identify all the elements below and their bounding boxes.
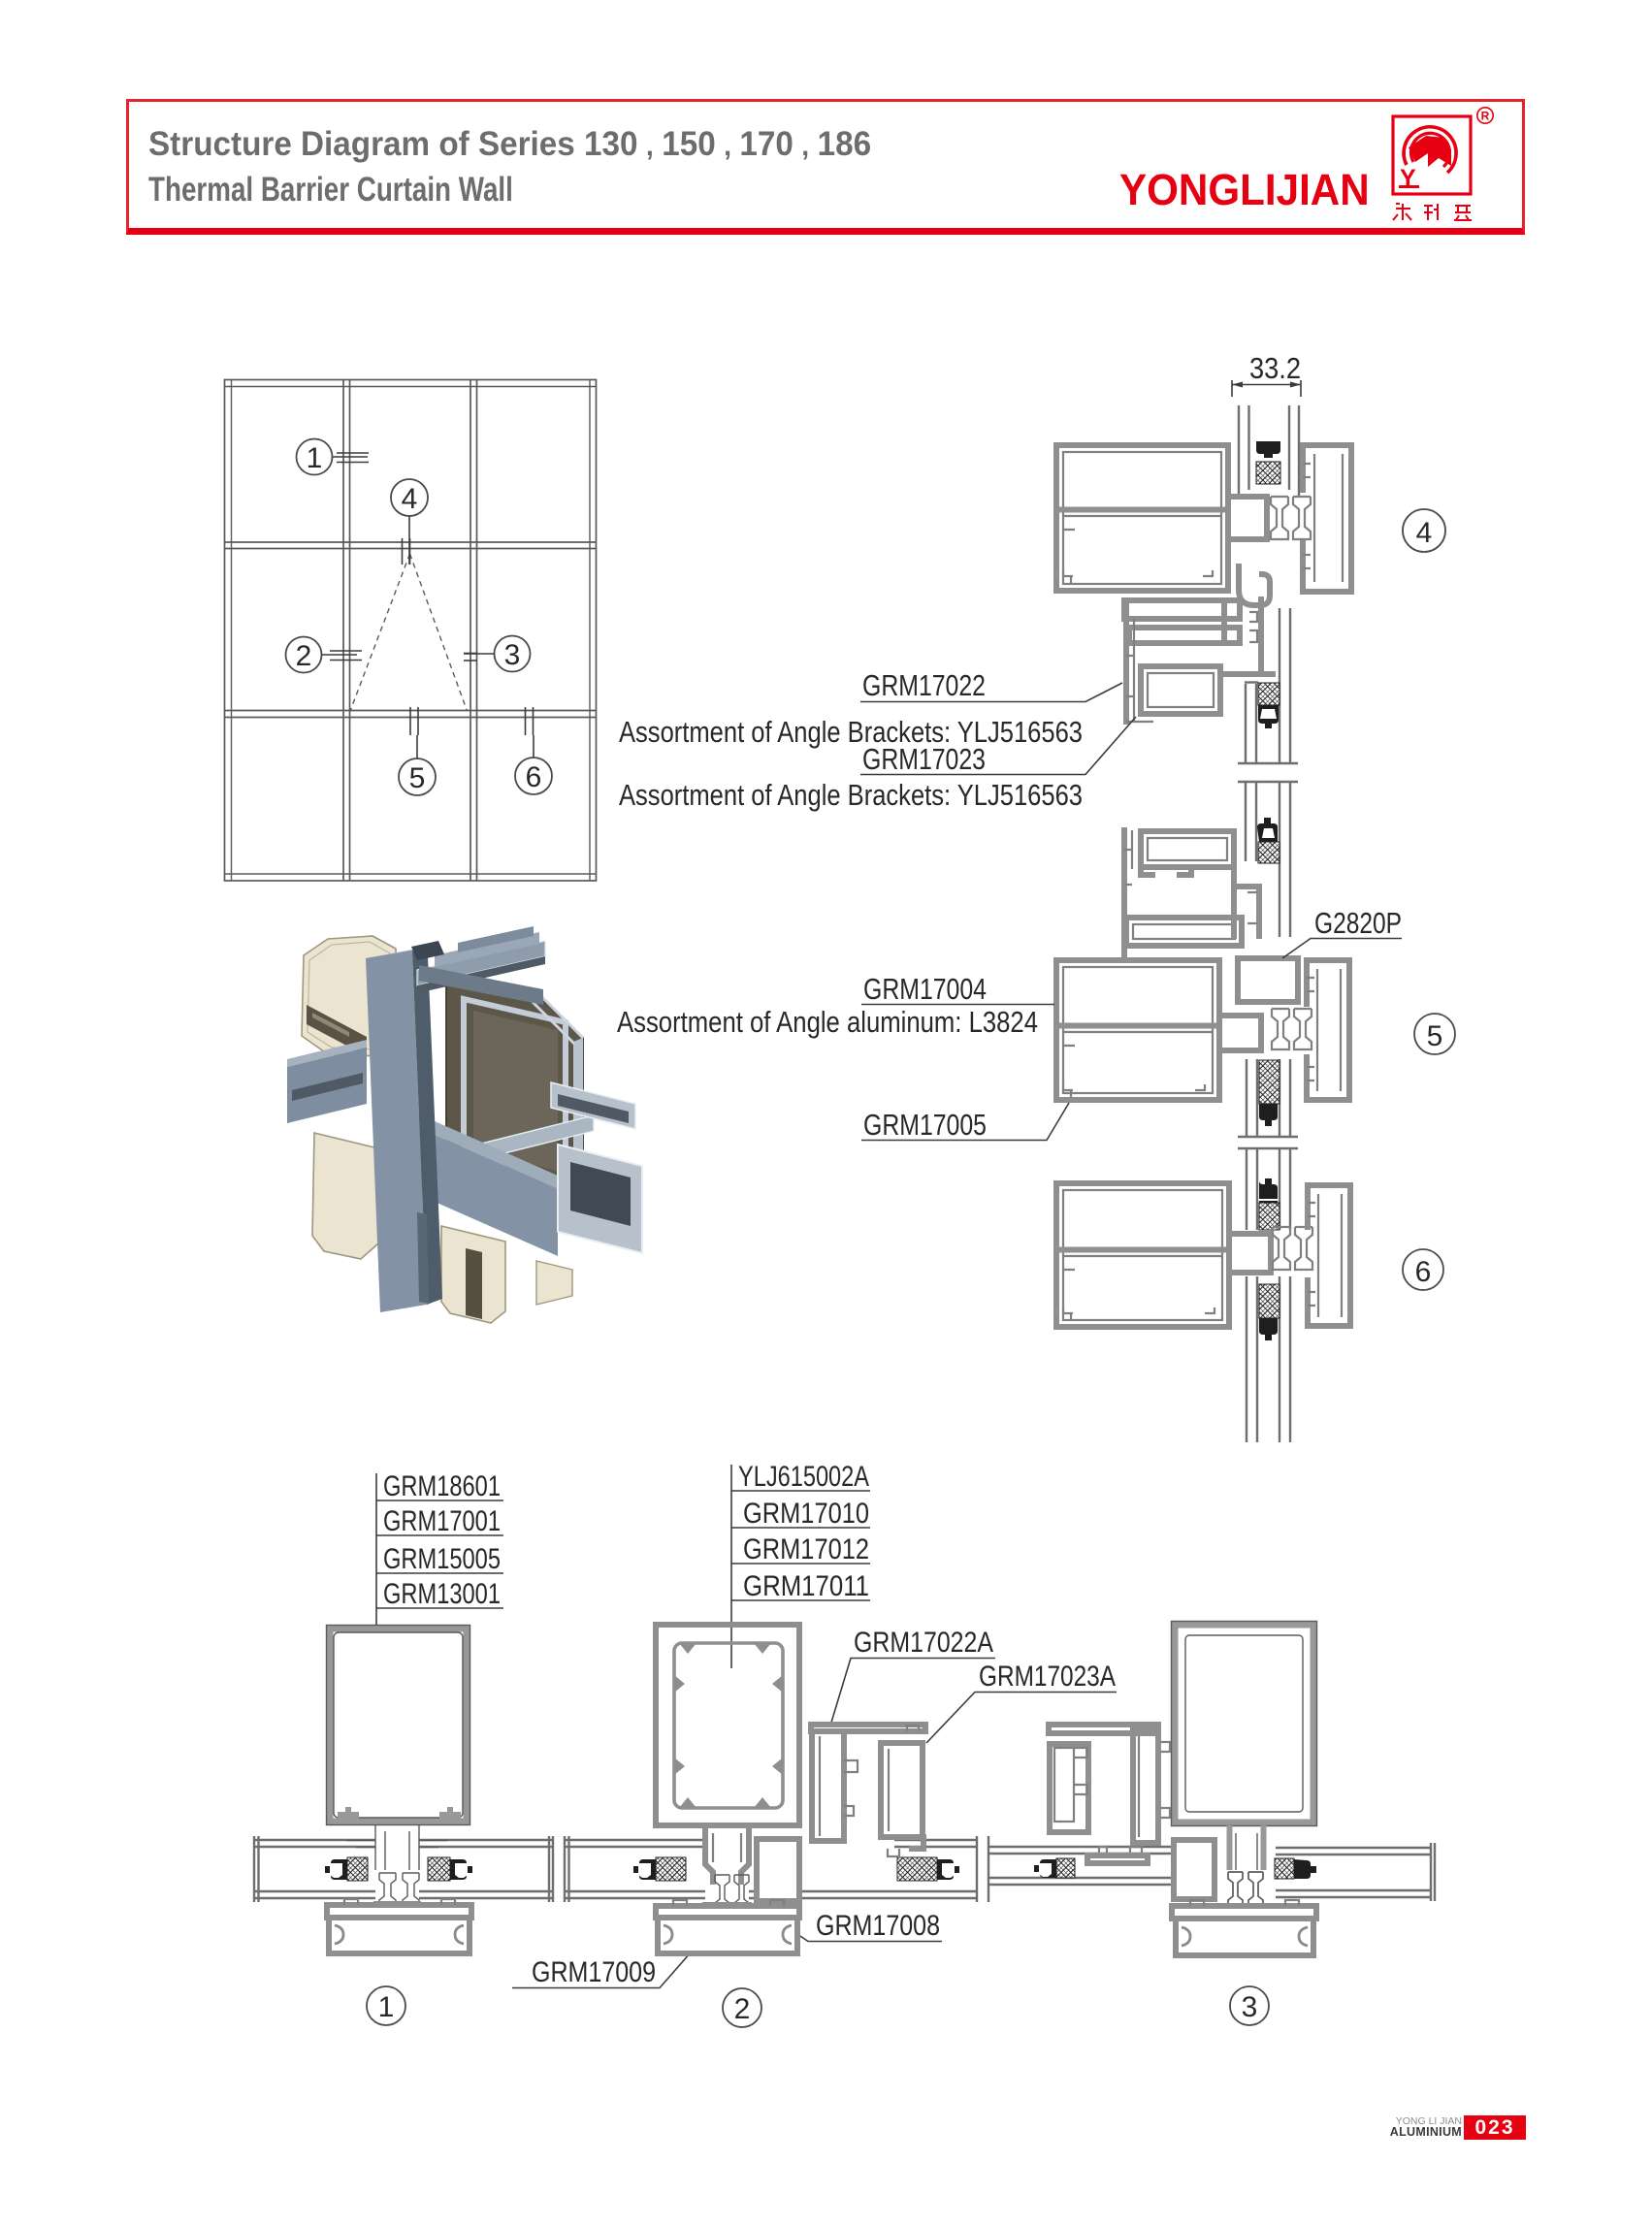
- svg-text:GRM17005: GRM17005: [863, 1108, 987, 1142]
- svg-text:GRM17012: GRM17012: [743, 1533, 869, 1565]
- svg-text:GRM17011: GRM17011: [743, 1570, 869, 1602]
- svg-text:5: 5: [409, 762, 426, 794]
- svg-text:4: 4: [1416, 517, 1433, 549]
- svg-text:2: 2: [734, 1993, 751, 2025]
- svg-text:6: 6: [1415, 1256, 1432, 1288]
- svg-text:1: 1: [378, 1991, 395, 2023]
- svg-text:4: 4: [402, 483, 418, 515]
- svg-text:GRM13001: GRM13001: [383, 1578, 501, 1610]
- svg-text:GRM17001: GRM17001: [383, 1505, 501, 1537]
- svg-text:GRM17004: GRM17004: [863, 972, 987, 1006]
- svg-text:Assortment of Angle Brackets:: Assortment of Angle Brackets: YLJ516563: [619, 715, 1083, 749]
- svg-text:GRM17022A: GRM17022A: [854, 1627, 993, 1659]
- svg-text:33.2: 33.2: [1249, 351, 1301, 385]
- svg-text:GRM17008: GRM17008: [816, 1910, 940, 1942]
- svg-text:GRM17022: GRM17022: [862, 668, 986, 702]
- svg-text:GRM17023A: GRM17023A: [979, 1661, 1116, 1693]
- svg-text:Assortment of Angle Brackets:: Assortment of Angle Brackets: YLJ516563: [619, 778, 1083, 812]
- svg-text:GRM18601: GRM18601: [383, 1470, 501, 1502]
- svg-text:G2820P: G2820P: [1314, 906, 1402, 940]
- svg-text:YLJ615002A: YLJ615002A: [738, 1461, 869, 1493]
- svg-text:GRM17023: GRM17023: [862, 742, 986, 776]
- svg-text:3: 3: [504, 639, 521, 671]
- svg-text:R: R: [1481, 110, 1490, 123]
- svg-text:5: 5: [1427, 1020, 1443, 1052]
- svg-text:1: 1: [307, 442, 323, 474]
- svg-text:GRM17010: GRM17010: [743, 1498, 869, 1530]
- svg-text:GRM15005: GRM15005: [383, 1543, 501, 1575]
- svg-text:GRM17009: GRM17009: [532, 1956, 656, 1988]
- svg-text:2: 2: [296, 640, 312, 672]
- svg-text:6: 6: [526, 761, 542, 793]
- svg-text:Assortment of Angle aluminum:: Assortment of Angle aluminum: L3824: [617, 1005, 1038, 1039]
- svg-text:3: 3: [1242, 1991, 1258, 2023]
